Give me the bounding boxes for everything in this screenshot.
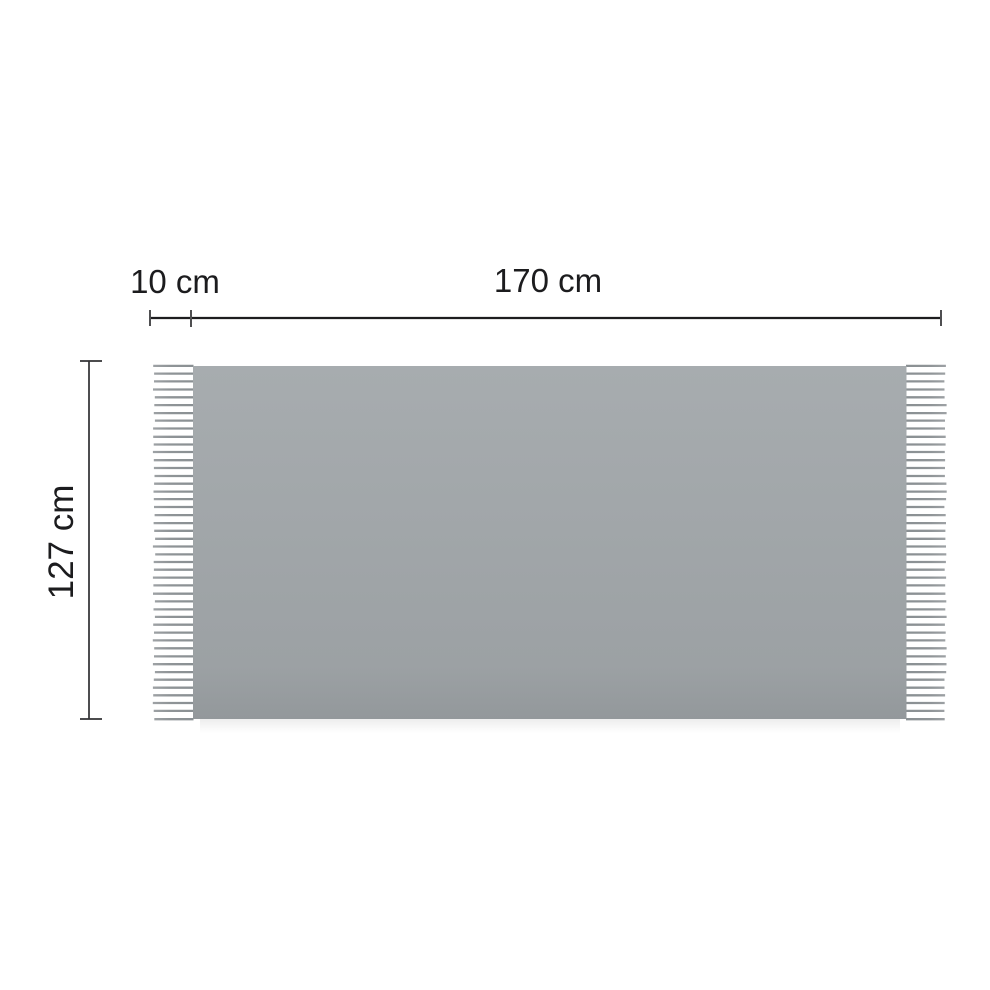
svg-text:127 cm: 127 cm	[42, 485, 81, 600]
svg-text:10 cm: 10 cm	[130, 263, 220, 300]
svg-text:170 cm: 170 cm	[494, 262, 602, 299]
